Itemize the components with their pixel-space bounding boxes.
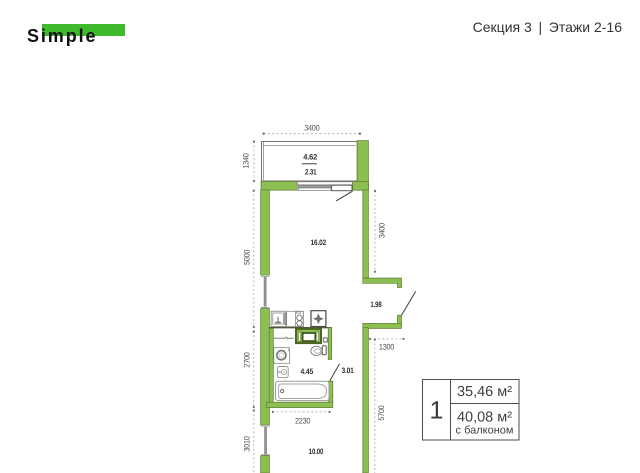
svg-text:5700: 5700 <box>377 405 386 421</box>
svg-text:2700: 2700 <box>243 352 252 368</box>
svg-text:16.02: 16.02 <box>311 238 327 247</box>
svg-text:35,46 м²: 35,46 м² <box>457 384 512 400</box>
svg-text:1.98: 1.98 <box>370 300 382 309</box>
svg-text:3010: 3010 <box>243 436 252 452</box>
svg-text:4.62: 4.62 <box>303 153 318 162</box>
svg-text:1: 1 <box>430 397 444 425</box>
svg-text:3400: 3400 <box>378 222 387 238</box>
svg-text:2.31: 2.31 <box>305 168 317 177</box>
svg-text:4.45: 4.45 <box>301 367 314 376</box>
svg-text:1300: 1300 <box>379 342 395 351</box>
svg-text:5000: 5000 <box>243 249 252 265</box>
svg-text:3400: 3400 <box>304 123 320 132</box>
svg-text:40,08 м²: 40,08 м² <box>457 410 512 426</box>
svg-text:2230: 2230 <box>295 416 311 425</box>
svg-text:3.01: 3.01 <box>342 366 355 375</box>
svg-text:1340: 1340 <box>241 153 250 169</box>
svg-text:с балконом: с балконом <box>456 425 514 437</box>
svg-text:10.00: 10.00 <box>309 447 324 456</box>
